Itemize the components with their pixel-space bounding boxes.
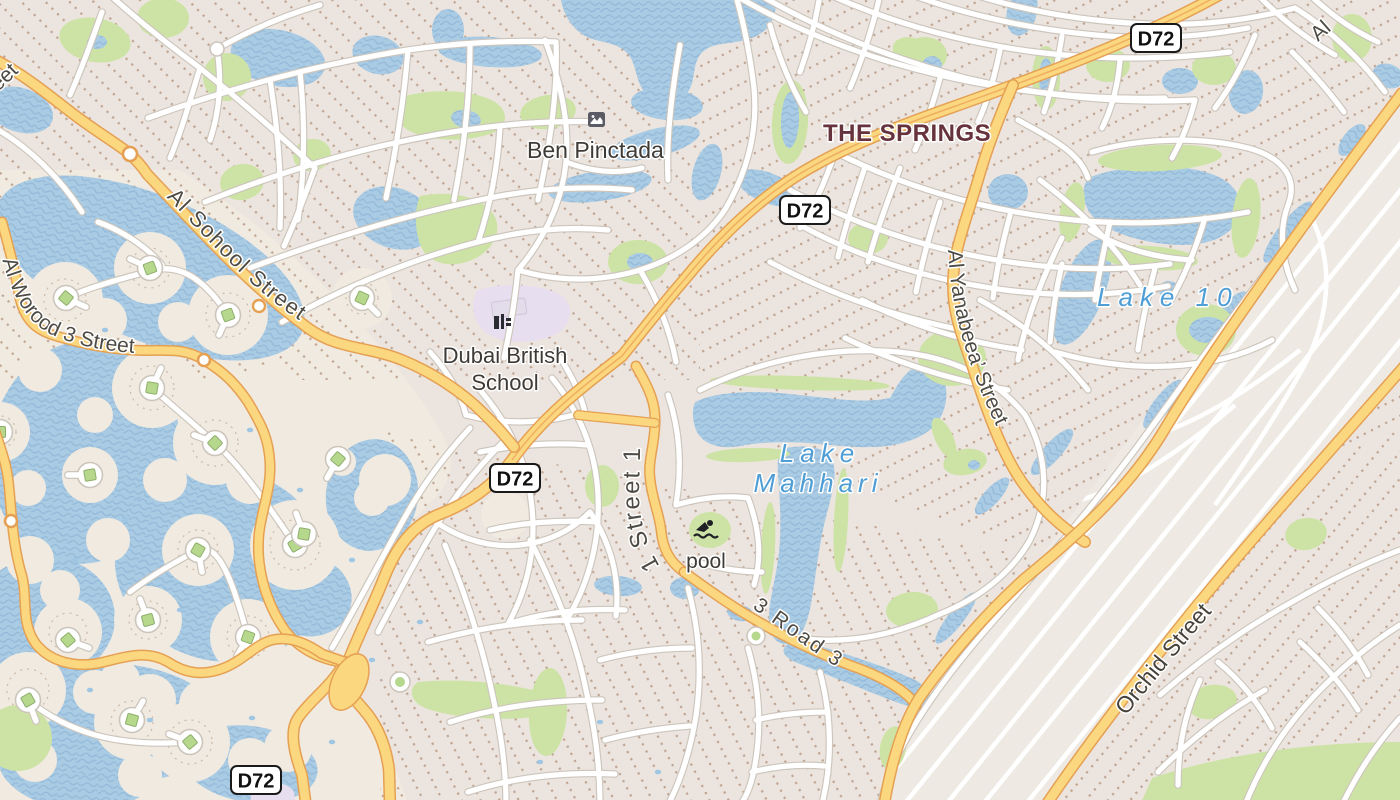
svg-text:pool: pool (686, 550, 726, 573)
svg-text:D72: D72 (787, 201, 824, 223)
svg-text:Mahhari: Mahhari (754, 468, 883, 498)
svg-text:THE SPRINGS: THE SPRINGS (823, 120, 991, 147)
svg-text:D72: D72 (238, 771, 275, 793)
svg-text:D72: D72 (1138, 29, 1175, 51)
svg-text:Lake: Lake (780, 438, 860, 468)
svg-text:Dubai British: Dubai British (443, 343, 568, 368)
svg-text:School: School (471, 370, 538, 395)
svg-text:Ben Pinctada: Ben Pinctada (527, 137, 664, 163)
svg-text:Lake 10: Lake 10 (1097, 282, 1239, 312)
svg-text:D72: D72 (497, 469, 534, 491)
